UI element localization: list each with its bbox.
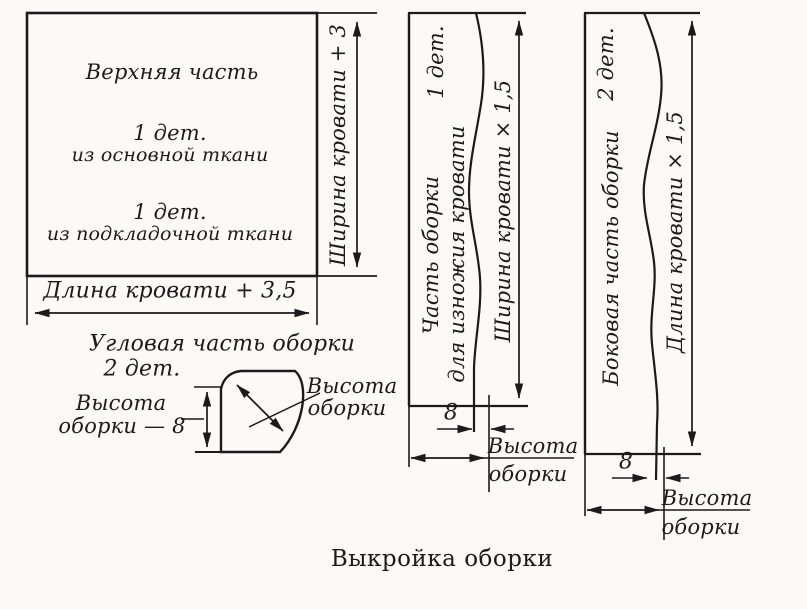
side-piece-length-dimension-label: Длина кровати × 1,5 — [664, 111, 686, 353]
side-piece-wavy-edge — [644, 13, 662, 480]
top-piece-fabric2-label: из подкладочной ткани — [47, 225, 293, 245]
corner-height-label-line2: оборки — [308, 397, 387, 419]
top-piece-name-label: Верхняя часть — [86, 61, 259, 83]
corner-piece-outline — [194, 371, 303, 452]
foot-piece-height-label-line2: оборки — [489, 463, 568, 485]
foot-piece-height-label-line1: Высота — [488, 435, 579, 457]
corner-height-label-line1: Высота — [307, 375, 398, 397]
side-piece-height-label-line2: оборки — [662, 516, 741, 538]
side-piece-seam-width-label: 8 — [619, 450, 633, 473]
side-piece-name-label: Боковая часть оборки — [600, 130, 622, 386]
figure-caption: Выкройка оборки — [331, 547, 553, 571]
top-piece-count2-label: 1 дет. — [133, 201, 207, 223]
corner-piece-title-label: Угловая часть оборки — [89, 332, 355, 355]
corner-piece-count-label: 2 дет. — [103, 357, 180, 380]
pattern-diagram-page: Верхняя часть 1 дет. из основной ткани 1… — [0, 0, 807, 609]
foot-piece-wavy-edge — [469, 13, 483, 432]
side-piece-height-label-line1: Высота — [662, 487, 753, 509]
foot-piece-seam-width-label: 8 — [444, 401, 458, 424]
corner-height-minus-label-line1: Высота — [76, 392, 167, 414]
side-piece-count-label: 2 дет. — [595, 27, 617, 101]
top-piece-fabric1-label: из основной ткани — [72, 146, 269, 166]
foot-piece-width-dimension-label: Ширина кровати × 1,5 — [492, 80, 514, 343]
foot-piece-count-label: 1 дет. — [425, 25, 447, 99]
top-piece-width-dimension-label: Ширина кровати + 3 — [327, 24, 349, 266]
foot-piece-name-label-line1: Часть оборки — [420, 176, 442, 335]
top-piece-length-dimension-label: Длина кровати + 3,5 — [43, 279, 296, 302]
corner-height-minus-label-line2: оборки — 8 — [58, 415, 185, 437]
top-piece-count1-label: 1 дет. — [133, 122, 207, 144]
foot-piece-name-label-line2: для изножия кровати — [446, 125, 468, 382]
